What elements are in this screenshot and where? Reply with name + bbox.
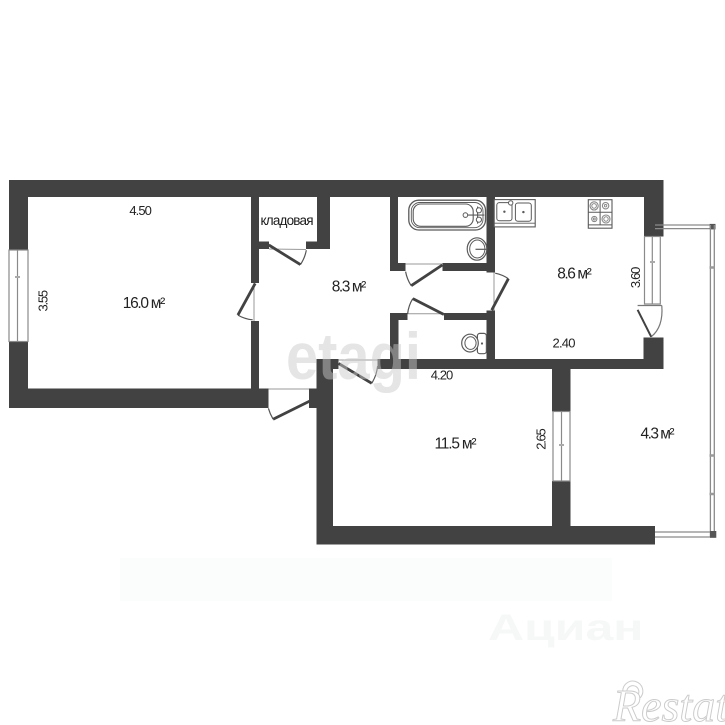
svg-text:кладовая: кладовая: [261, 213, 314, 228]
svg-text:3.55: 3.55: [36, 290, 51, 312]
svg-text:8.6 м²: 8.6 м²: [557, 265, 592, 282]
svg-text:Ациан: Ациан: [488, 607, 643, 648]
svg-text:4.50: 4.50: [129, 203, 152, 218]
svg-text:4.3 м²: 4.3 м²: [641, 425, 675, 442]
svg-text:2.40: 2.40: [553, 336, 576, 351]
svg-text:4.20: 4.20: [431, 368, 454, 383]
svg-text:3.60: 3.60: [628, 267, 643, 289]
svg-text:11.5 м²: 11.5 м²: [435, 436, 477, 453]
svg-text:8.3 м²: 8.3 м²: [332, 279, 367, 296]
svg-text:Restate: Restate: [612, 680, 725, 725]
svg-text:etagi: etagi: [286, 319, 421, 393]
svg-text:2.65: 2.65: [534, 428, 549, 450]
svg-text:16.0 м²: 16.0 м²: [123, 295, 166, 312]
